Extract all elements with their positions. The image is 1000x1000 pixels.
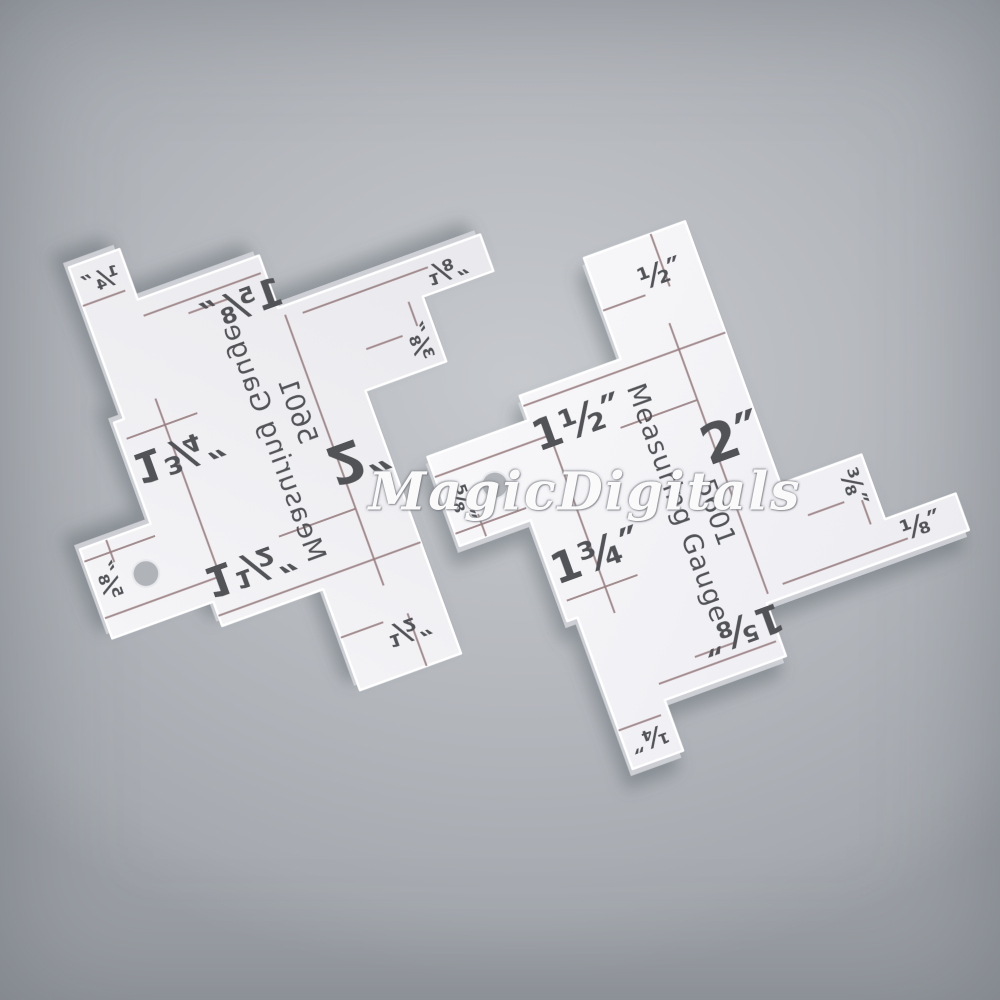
product-photo: ½″1½″2″⅝″1¾″1⅝″¼″⅜″⅛″Measuring Gauge5601… xyxy=(0,0,1000,1000)
